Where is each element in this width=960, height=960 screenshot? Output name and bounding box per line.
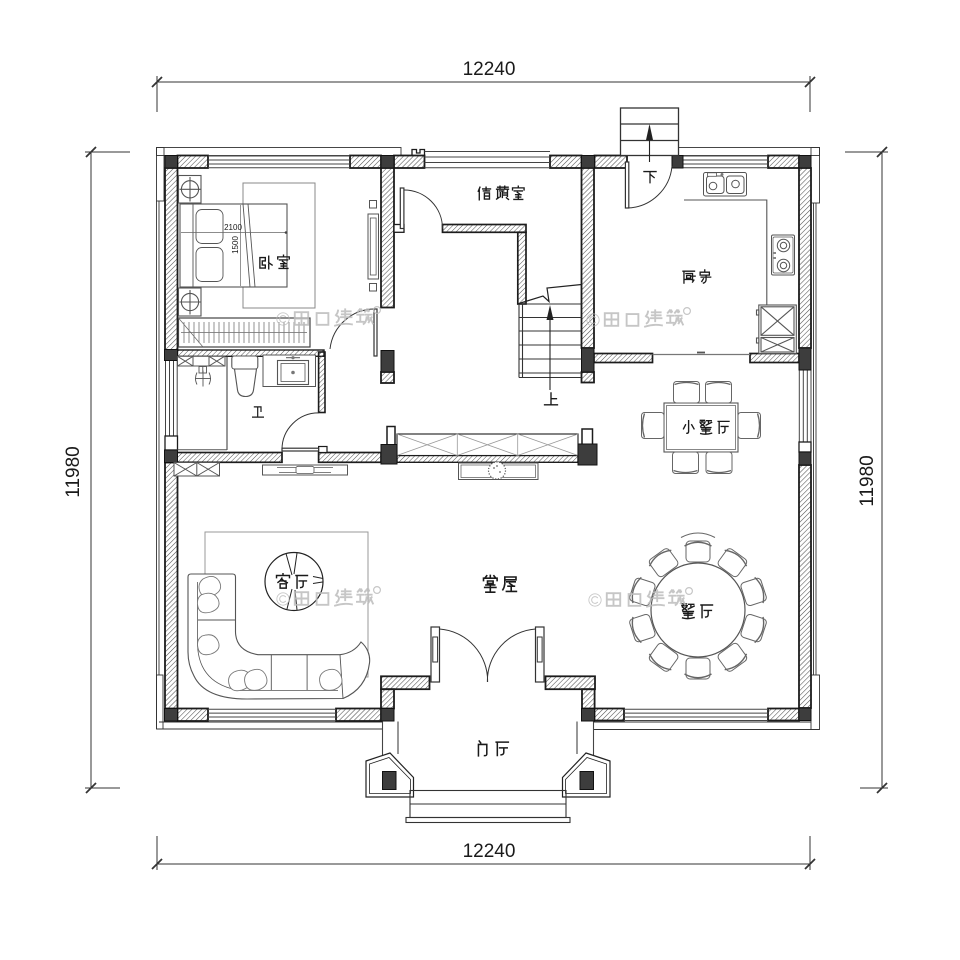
svg-text:2100: 2100 xyxy=(224,223,242,232)
svg-text:11980: 11980 xyxy=(857,455,878,506)
svg-text:12240: 12240 xyxy=(463,841,516,862)
svg-text:12240: 12240 xyxy=(463,59,516,80)
svg-text:1500: 1500 xyxy=(231,236,240,254)
svg-text:11980: 11980 xyxy=(63,446,84,497)
